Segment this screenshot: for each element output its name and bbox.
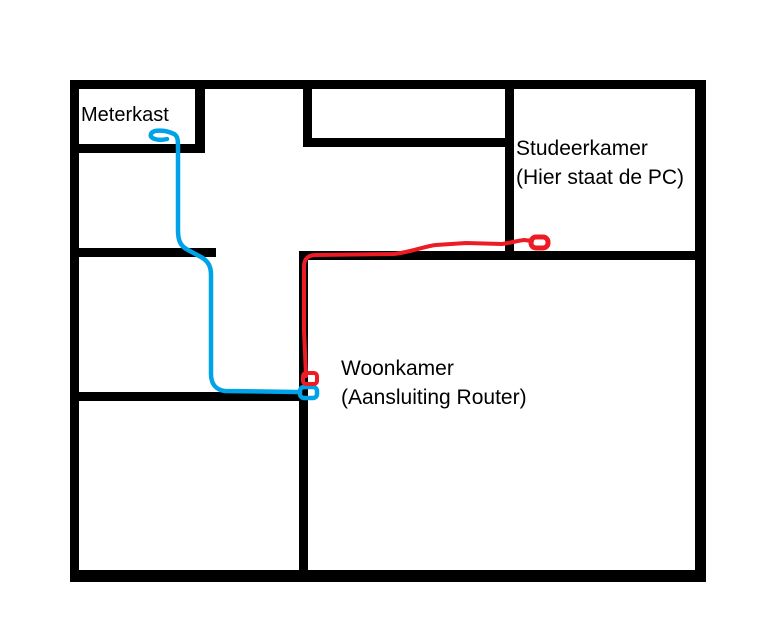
outer-right-wall: [695, 80, 706, 582]
room-label-woonkamer: Woonkamer (Aansluiting Router): [341, 354, 527, 412]
room-label-studeerkamer-name: Studeerkamer: [516, 134, 684, 163]
midtop-room-bottom-wall: [303, 138, 514, 147]
red-cable-pc-end: [531, 237, 548, 248]
outer-top-wall: [70, 80, 706, 89]
room-label-meterkast-text: Meterkast: [81, 103, 169, 127]
blue-cable-meterkast-to-router: [151, 131, 174, 140]
room-label-woonkamer-note: (Aansluiting Router): [341, 383, 527, 412]
meterkast-bottom-wall: [70, 144, 205, 153]
meterkast-right-wall: [195, 80, 205, 153]
midtop-room-left-wall: [303, 86, 312, 144]
room-label-woonkamer-name: Woonkamer: [341, 354, 527, 383]
outer-left-wall: [70, 80, 79, 582]
blue-cable-meterkast-to-router: [174, 134, 298, 392]
floorplan-canvas: Meterkast Studeerkamer (Hier staat de PC…: [0, 0, 777, 630]
floorplan-drawing: [0, 0, 777, 630]
room-label-studeerkamer: Studeerkamer (Hier staat de PC): [516, 134, 684, 192]
studeerkamer-left-wall: [505, 86, 514, 256]
room-label-studeerkamer-note: (Hier staat de PC): [516, 163, 684, 192]
room-label-meterkast: Meterkast: [81, 103, 169, 127]
outer-bottom-wall: [70, 570, 706, 582]
